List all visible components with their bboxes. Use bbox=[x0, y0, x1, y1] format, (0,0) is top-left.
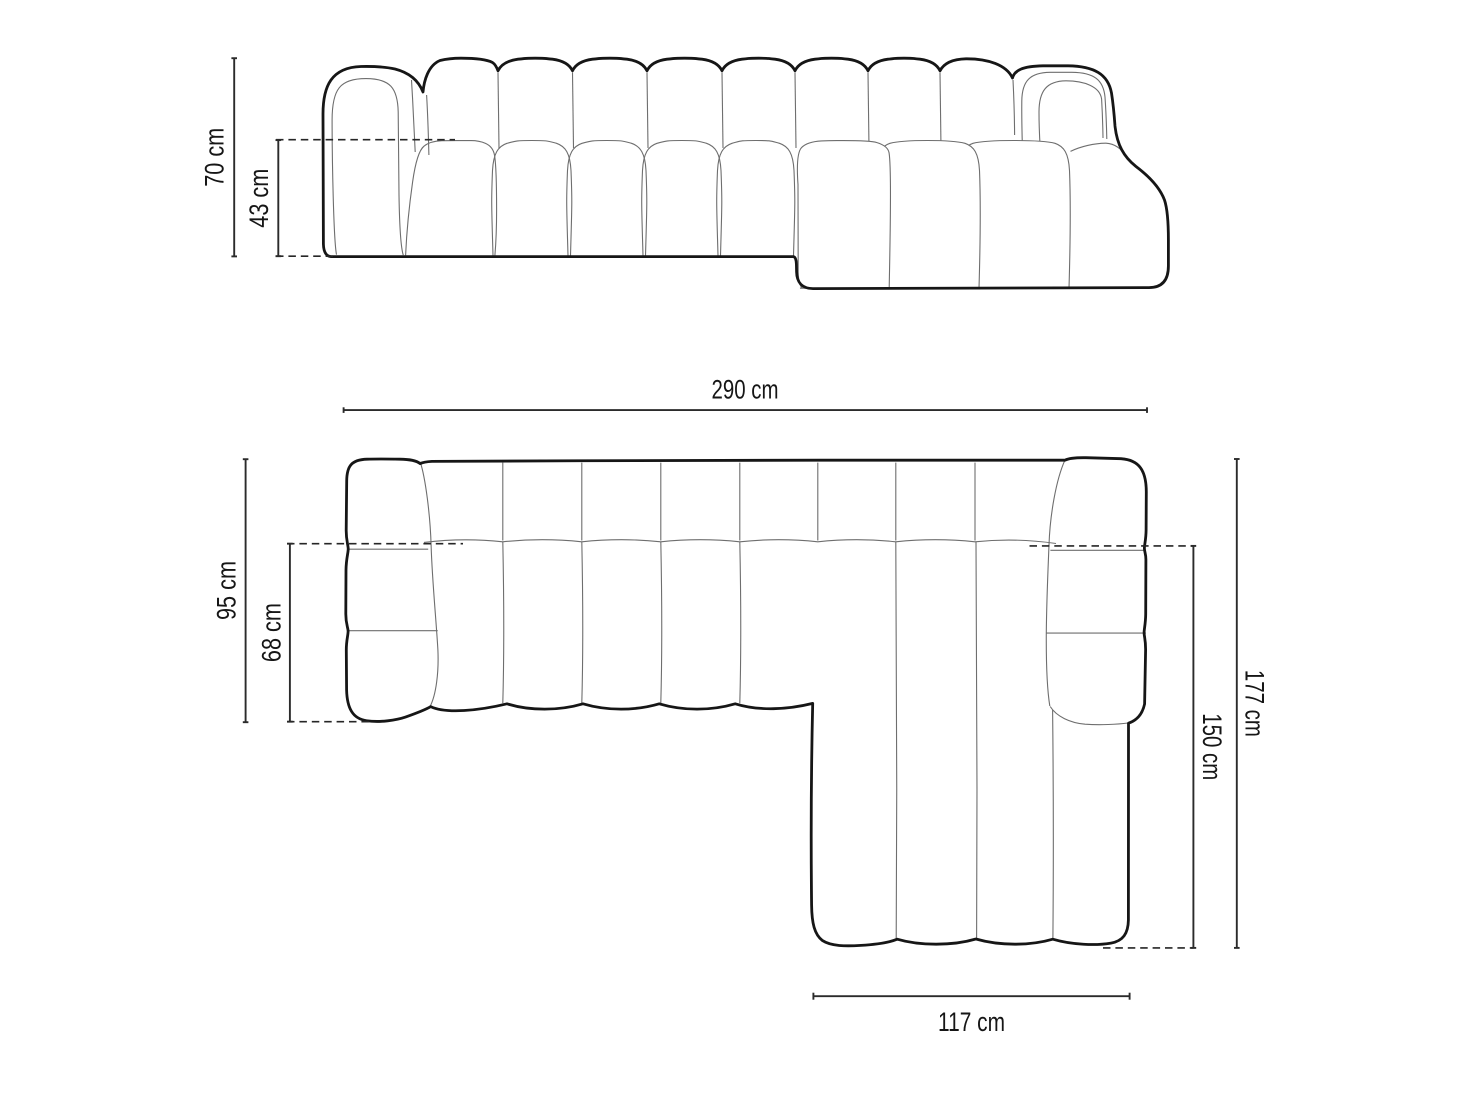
svg-text:117 cm: 117 cm bbox=[938, 1007, 1005, 1037]
svg-text:68 cm: 68 cm bbox=[257, 603, 287, 662]
svg-text:177 cm: 177 cm bbox=[1240, 670, 1270, 737]
svg-text:70 cm: 70 cm bbox=[200, 128, 230, 187]
svg-text:95 cm: 95 cm bbox=[212, 561, 242, 620]
svg-text:290 cm: 290 cm bbox=[712, 374, 779, 404]
svg-text:43 cm: 43 cm bbox=[244, 169, 274, 228]
svg-text:150 cm: 150 cm bbox=[1197, 713, 1227, 780]
